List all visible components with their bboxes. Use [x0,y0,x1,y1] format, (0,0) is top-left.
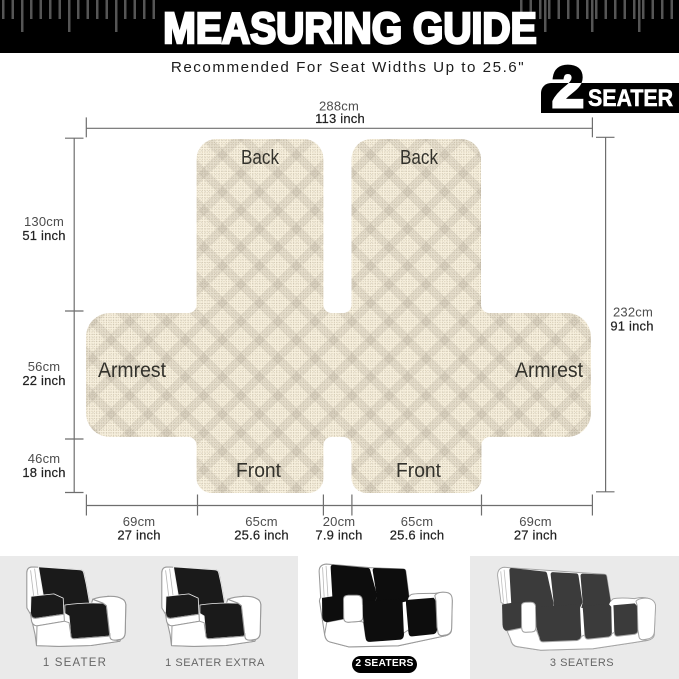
svg-text:46cm: 46cm [28,451,61,466]
svg-text:18 inch: 18 inch [22,465,65,480]
svg-text:91 inch: 91 inch [610,319,653,334]
svg-text:56cm: 56cm [28,359,61,374]
svg-text:113 inch: 113 inch [315,111,365,126]
svg-text:Armrest: Armrest [515,359,583,382]
svg-text:232cm: 232cm [613,305,653,320]
svg-text:Front: Front [396,460,441,482]
svg-text:130cm: 130cm [24,214,64,229]
svg-text:51 inch: 51 inch [22,228,65,243]
svg-text:Back: Back [400,147,439,169]
svg-text:Front: Front [236,460,281,482]
svg-text:25.6 inch: 25.6 inch [390,528,445,543]
svg-text:Armrest: Armrest [98,359,166,382]
svg-text:27 inch: 27 inch [117,528,160,543]
svg-text:25.6 inch: 25.6 inch [234,528,289,543]
svg-text:Back: Back [241,147,280,169]
svg-text:27 inch: 27 inch [514,528,557,543]
svg-text:7.9 inch: 7.9 inch [315,528,362,543]
svg-text:22 inch: 22 inch [22,373,65,388]
